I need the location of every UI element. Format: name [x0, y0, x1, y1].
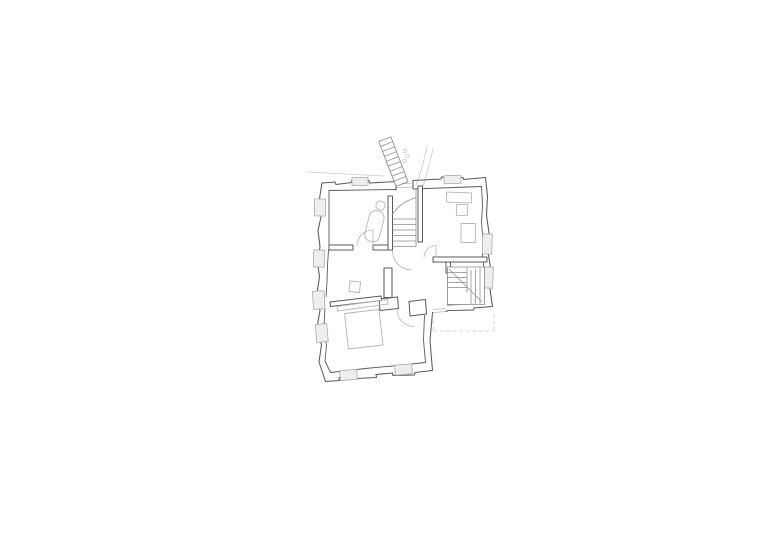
secondary-stair	[448, 267, 485, 305]
main-internal-stair	[392, 190, 416, 247]
counter-top	[446, 192, 471, 203]
sink	[376, 201, 385, 210]
external-staircase	[379, 137, 408, 186]
bed	[345, 310, 384, 350]
stair-annotation-squiggle	[403, 149, 409, 162]
floor-plan-drawing	[0, 0, 780, 538]
terrace-dashed-outline	[433, 312, 494, 332]
stove	[456, 204, 467, 215]
cabinet	[461, 223, 476, 242]
column-post	[349, 281, 361, 293]
chimney	[384, 268, 392, 298]
bathtub	[363, 209, 385, 243]
floor-plan-page	[0, 0, 780, 538]
